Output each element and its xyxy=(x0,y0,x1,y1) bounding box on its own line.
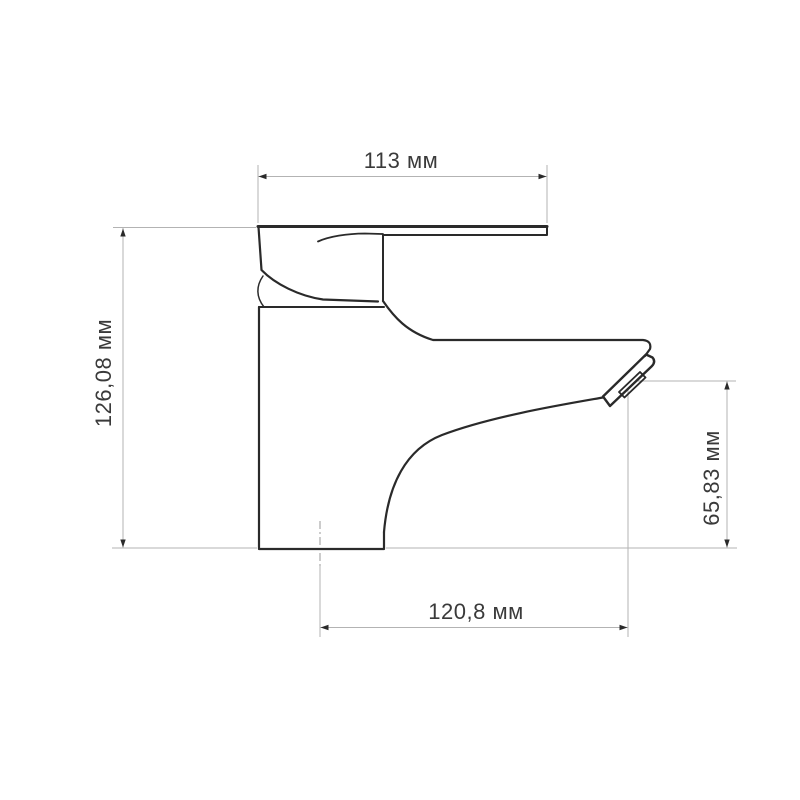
arrowhead-down xyxy=(724,540,729,548)
aerator-nozzle xyxy=(603,355,654,407)
arrowhead-up xyxy=(120,229,125,237)
body-base xyxy=(259,307,384,549)
arrowhead-left xyxy=(321,625,329,630)
arrowhead-right xyxy=(620,625,628,630)
handle-inner-contour xyxy=(318,234,383,242)
handle-body xyxy=(259,227,379,302)
arrowhead-up xyxy=(724,382,729,390)
dimension-label-right-spout-height: 65,83 мм xyxy=(699,430,725,525)
dimension-label-bottom-depth: 120,8 мм xyxy=(428,599,523,625)
dimension-left-height xyxy=(112,228,737,549)
spout-top xyxy=(383,301,650,356)
faucet-dimension-drawing xyxy=(0,0,800,800)
arrowhead-right xyxy=(539,174,547,179)
dimension-label-top-width: 113 мм xyxy=(364,148,438,174)
technical-drawing-canvas: 113 мм 126,08 мм 65,83 мм 120,8 мм xyxy=(0,0,800,800)
arrowhead-down xyxy=(120,540,125,548)
handle-joint-arc xyxy=(258,276,264,307)
faucet-outline xyxy=(258,227,654,550)
dimension-label-left-height: 126,08 мм xyxy=(91,319,117,427)
spout-underside xyxy=(384,398,603,533)
arrowhead-left xyxy=(259,174,267,179)
